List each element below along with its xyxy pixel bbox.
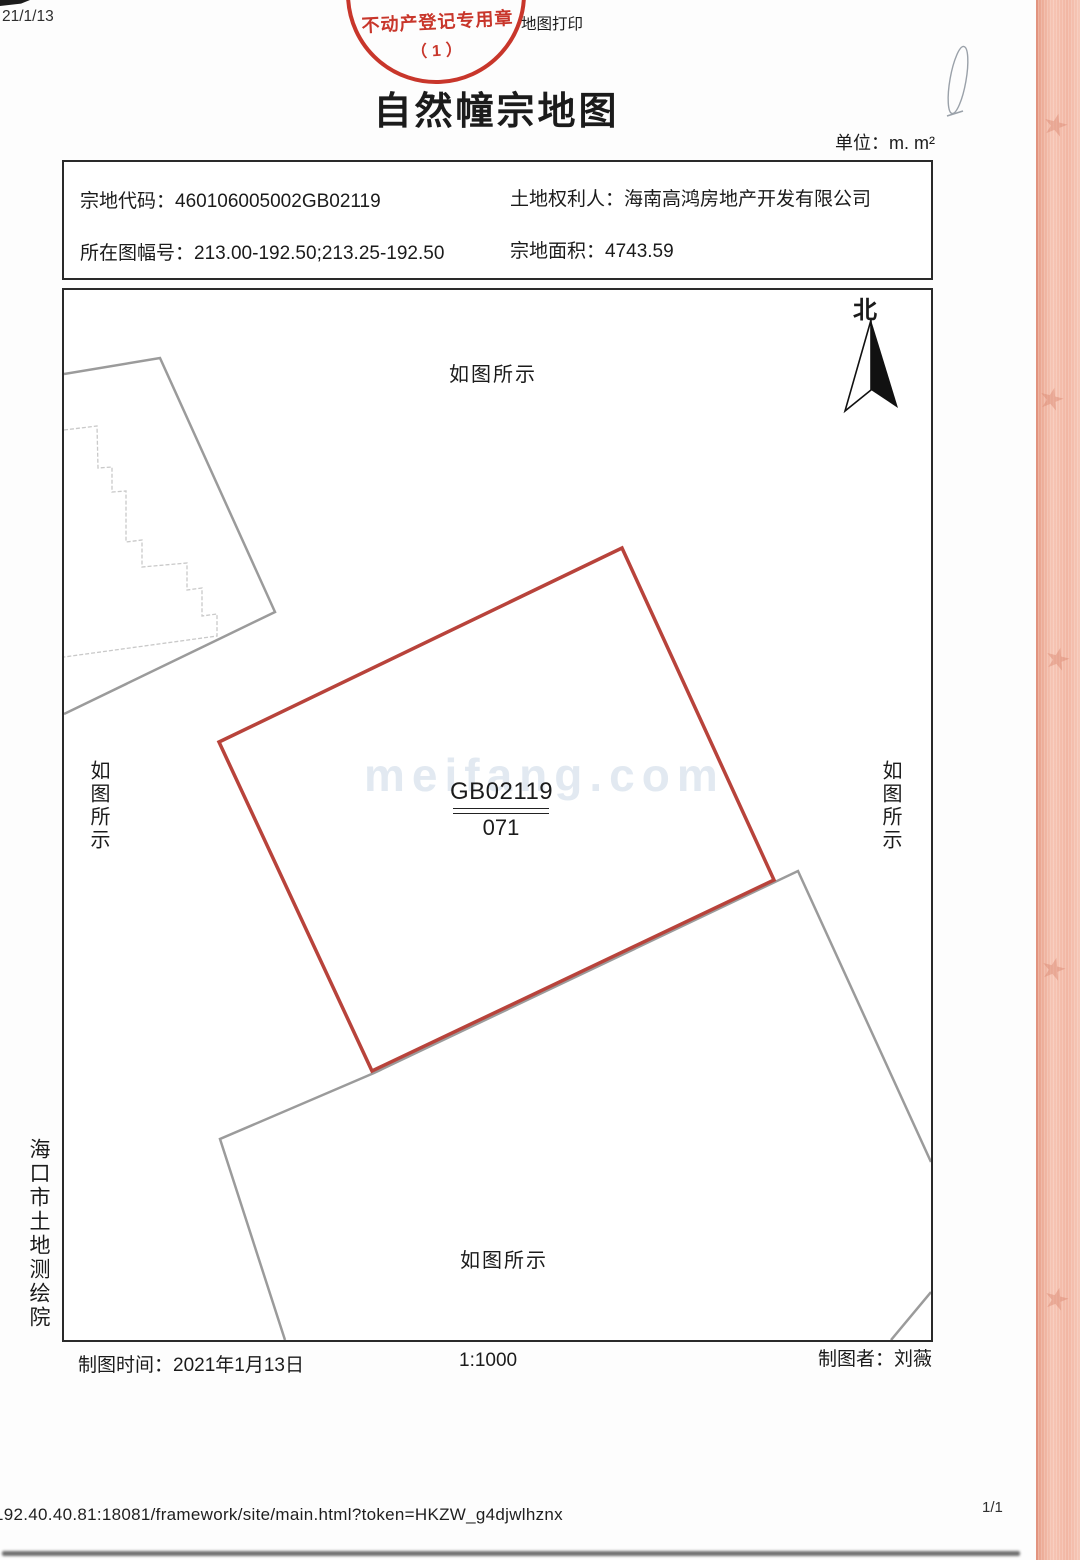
parcel-area-label: 宗地面积： [510, 241, 605, 262]
drawing-author-label: 制图者： [818, 1349, 894, 1370]
source-url-text: 192.40.40.81:18081/framework/site/main.h… [0, 1505, 563, 1525]
parcel-label: GB02119 071 [450, 778, 552, 841]
map-note-right: 如图所示 [876, 760, 905, 852]
map-note-left: 如图所示 [84, 760, 113, 852]
seal-number: （1） [352, 32, 525, 65]
institute-name: 海口市土地测绘院 [23, 1138, 53, 1330]
registration-seal: 不动产登记专用章 （1） [341, 0, 530, 89]
parcel-area-value: 4743.59 [605, 241, 674, 262]
parcel-area-row: 宗地面积：4743.59 [510, 236, 674, 263]
map-canvas: 北 如图所示 如图所示 如图所示 如图所示 meifang.com GB0211… [62, 288, 933, 1342]
neighbor-parcel-top-left [64, 358, 275, 714]
parcel-sublabel-text: 071 [450, 815, 552, 841]
drawing-time-label: 制图时间： [78, 1355, 173, 1376]
north-arrow-icon [845, 320, 898, 411]
drawing-time: 制图时间：2021年1月13日 [78, 1350, 304, 1377]
pen-mark-icon [936, 40, 980, 130]
parcel-code-row: 宗地代码：460106005002GB02119 [80, 186, 381, 213]
scan-date-note: 21/1/13 [2, 8, 54, 26]
map-sheet-row: 所在图幅号：213.00-192.50;213.25-192.50 [80, 238, 444, 265]
parcel-code-text: GB02119 [450, 778, 552, 806]
land-holder-value: 海南高鸿房地产开发有限公司 [624, 189, 871, 210]
page-title: 自然幢宗地图 [62, 80, 931, 135]
map-note-bottom: 如图所示 [460, 1244, 548, 1273]
drawing-author-value: 刘薇 [894, 1349, 932, 1370]
map-print-note: 地图打印 [521, 12, 583, 34]
land-holder-row: 土地权利人：海南高鸿房地产开发有限公司 [510, 184, 871, 211]
scanned-parcel-map-page: ★ ★ ★ ★ ★ 21/1/13 不动产登记专用章 （1） 地图打印 自然幢宗… [0, 0, 1080, 1560]
parcel-code-value: 460106005002GB02119 [175, 191, 381, 212]
north-label: 北 [853, 290, 877, 325]
map-sheet-value: 213.00-192.50;213.25-192.50 [194, 243, 444, 264]
parcel-code-label: 宗地代码： [80, 191, 175, 212]
parcel-info-box: 宗地代码：460106005002GB02119 土地权利人：海南高鸿房地产开发… [62, 160, 933, 280]
fraction-bar [453, 808, 549, 814]
scan-corner-artifact [0, 0, 30, 6]
pink-paper-edge: ★ ★ ★ ★ ★ [1036, 0, 1080, 1560]
map-scale: 1:1000 [459, 1350, 517, 1372]
drawing-time-value: 2021年1月13日 [173, 1355, 304, 1376]
scan-bottom-artifact [2, 1551, 1020, 1556]
unit-note: 单位：m. m² [62, 129, 935, 155]
building-footprint-outline [64, 426, 217, 657]
map-sheet-label: 所在图幅号： [80, 243, 194, 264]
land-holder-label: 土地权利人： [510, 189, 624, 210]
map-note-top: 如图所示 [449, 358, 537, 387]
paper-texture [1038, 0, 1080, 1560]
drawing-author: 制图者：刘薇 [818, 1344, 932, 1371]
page-number: 1/1 [982, 1499, 1003, 1516]
neighbor-parcel-bottom [220, 871, 931, 1340]
